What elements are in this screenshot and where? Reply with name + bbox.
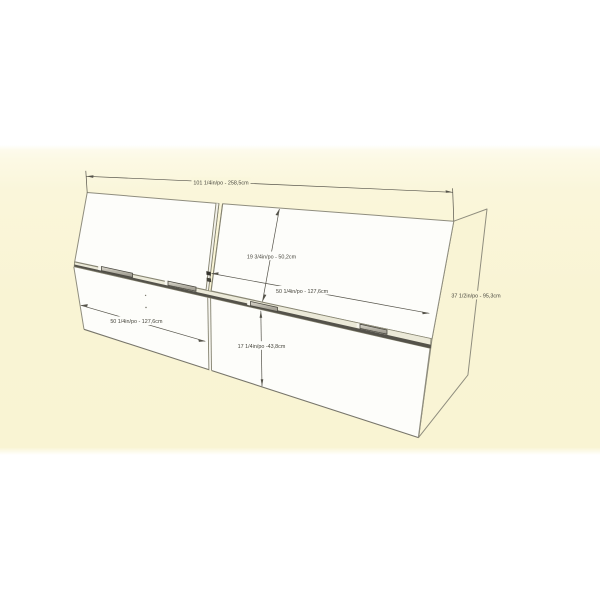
svg-text:50 1/4in/po - 127,6cm: 50 1/4in/po - 127,6cm — [276, 289, 329, 295]
svg-text:101 1/4in/po - 258,5cm: 101 1/4in/po - 258,5cm — [193, 180, 249, 186]
svg-text:17 1/4in/po -43,8cm: 17 1/4in/po -43,8cm — [238, 344, 286, 350]
svg-text:50 1/4in/po - 127,6cm: 50 1/4in/po - 127,6cm — [110, 319, 163, 325]
svg-text:19 3/4in/po - 50,2cm: 19 3/4in/po - 50,2cm — [247, 254, 297, 260]
svg-text:37 1/2in/po - 95,3cm: 37 1/2in/po - 95,3cm — [451, 294, 501, 300]
